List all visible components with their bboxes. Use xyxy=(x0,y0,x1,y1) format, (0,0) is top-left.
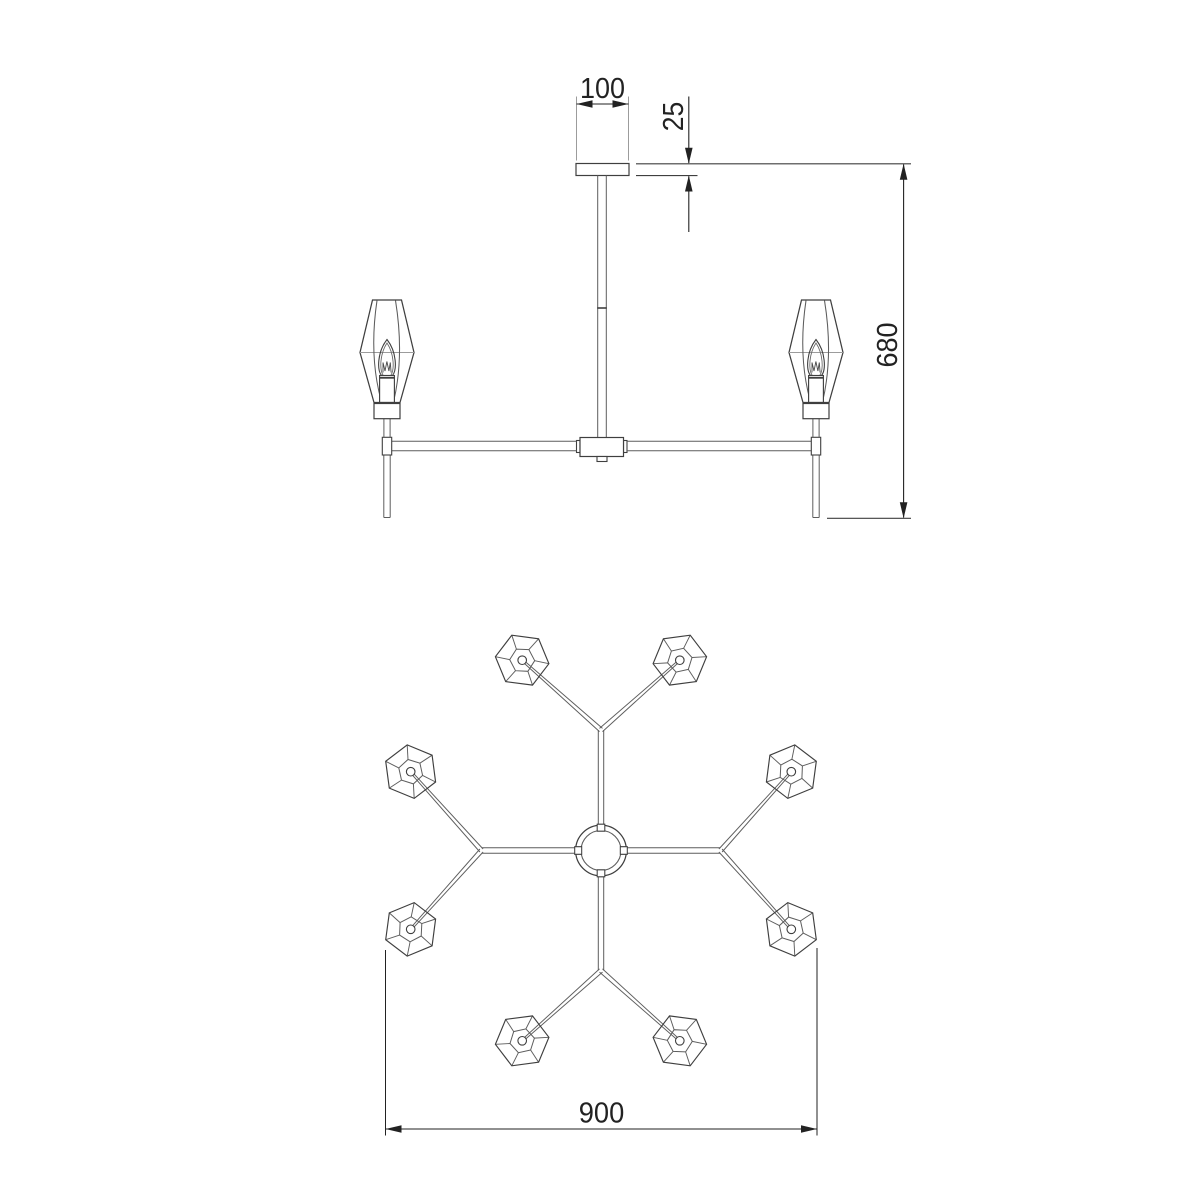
svg-text:100: 100 xyxy=(580,73,625,105)
svg-text:25: 25 xyxy=(658,102,690,132)
svg-text:900: 900 xyxy=(579,1098,625,1130)
svg-text:680: 680 xyxy=(872,323,904,368)
